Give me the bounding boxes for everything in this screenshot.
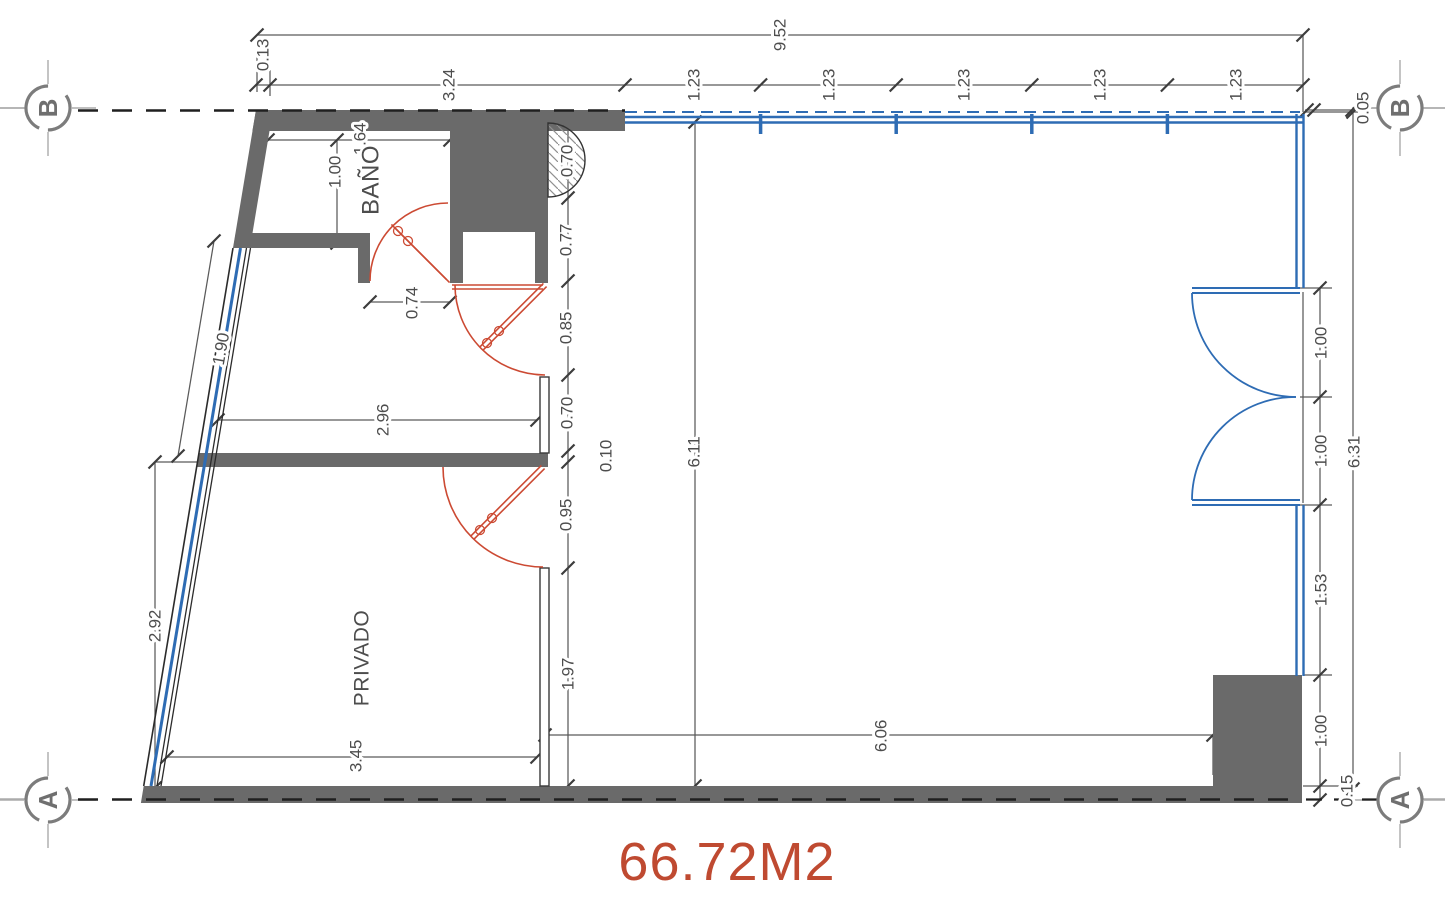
dimension-label: 1.53	[1312, 574, 1331, 606]
wall-bano-south	[233, 233, 370, 283]
dimension-label: 1.00	[326, 156, 345, 188]
dimension-tick	[172, 450, 185, 463]
dimension-label: 2.92	[146, 610, 165, 642]
dimension-label: 0.77	[557, 224, 576, 256]
door-swing-arc	[455, 285, 545, 375]
walls	[141, 110, 1302, 803]
dimension-line	[178, 241, 214, 456]
dimension-label: 0.13	[254, 39, 273, 71]
grid-marker-letter: B	[33, 99, 63, 118]
door-swing-arc	[443, 467, 543, 567]
dimension-label: 6.06	[872, 720, 891, 752]
dimension-label: 3.24	[440, 69, 459, 101]
thin-partitions	[540, 377, 549, 786]
dimension-label: 0.85	[557, 312, 576, 344]
dimension-label: 0.05	[1354, 92, 1373, 124]
dimension-label: 3.45	[347, 740, 366, 772]
dimension-label: 1.23	[955, 69, 974, 101]
glass-walls	[144, 112, 1304, 786]
wall-left-upper	[233, 110, 273, 248]
floor-plan-drawing: 9.520.133.241.231.231.231.231.230.056.31…	[0, 0, 1445, 924]
grid-marker-letter: B	[1385, 99, 1415, 118]
wall-partition	[197, 453, 548, 467]
wall-shaft	[450, 130, 548, 283]
dimension-label: 9.52	[771, 19, 790, 51]
dimension-label: 0.70	[558, 397, 577, 429]
dimension-label: 1.90	[209, 331, 233, 366]
wall-bottom	[141, 786, 1302, 803]
dimension-label: 6.31	[1345, 436, 1364, 468]
wall-top	[252, 110, 625, 131]
dimension-label: 0.74	[403, 287, 422, 319]
dimension-tick	[208, 235, 221, 248]
dimension-label: 1.23	[1091, 69, 1110, 101]
door-leaf	[395, 228, 450, 283]
window-inner-line	[157, 248, 247, 786]
wall-block-se	[1213, 675, 1302, 786]
thin-wall-upper	[540, 377, 549, 453]
dimension-label: 1.23	[685, 69, 704, 101]
dimension-labels: 9.520.133.241.231.231.231.231.230.056.31…	[146, 19, 1373, 807]
floorplan-page: 9.520.133.241.231.231.231.231.230.056.31…	[0, 0, 1445, 924]
room-label-baño: BAÑO	[358, 145, 385, 215]
dimension-label: 1.00	[1312, 327, 1331, 359]
dimension-label: 6.11	[685, 436, 704, 467]
dimension-label: 0.10	[597, 440, 616, 472]
room-label-privado: PRIVADO	[351, 610, 374, 706]
entry-door-swing-arc	[1192, 397, 1296, 500]
window-glass-line	[151, 248, 241, 786]
door-leaf	[483, 287, 547, 351]
dimension-label: 0.95	[557, 499, 576, 531]
area-label: 66.72M2	[618, 832, 835, 892]
dimension-label: 0.70	[558, 145, 577, 177]
dimension-lines	[149, 29, 1360, 807]
grid-marker-letter: A	[33, 790, 63, 809]
dimension-label: 1.23	[1227, 69, 1246, 101]
dimension-label: 0.15	[1338, 775, 1357, 807]
window-outer-line	[144, 248, 233, 786]
thin-wall-privado	[540, 568, 549, 786]
dimension-label: 1.97	[559, 658, 578, 690]
entry-door-swing-arc	[1192, 293, 1296, 397]
dimension-label: 2.96	[374, 404, 393, 436]
door-leaf	[479, 283, 543, 347]
dimension-label: 1.23	[820, 69, 839, 101]
grid-marker-letter: A	[1385, 790, 1415, 809]
dimension-label: 1.00	[1312, 435, 1331, 467]
window-inner-line	[161, 248, 251, 786]
dimension-label: 1.00	[1312, 715, 1331, 747]
